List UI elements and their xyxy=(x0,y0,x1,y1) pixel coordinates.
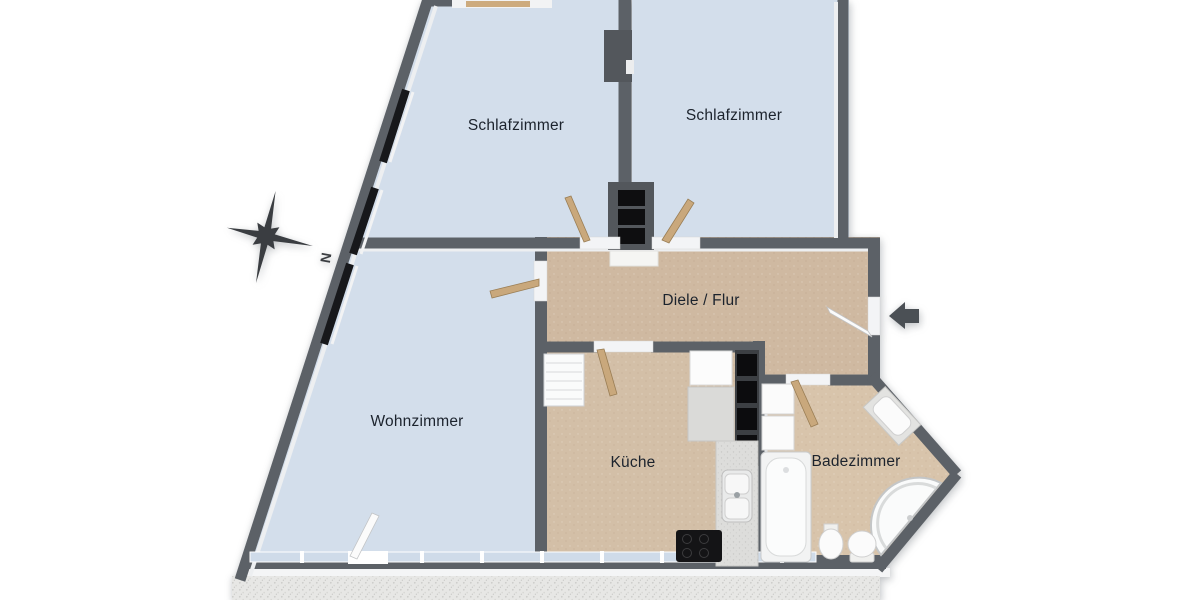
room-label-badezimmer: Badezimmer xyxy=(812,453,901,471)
room-label-diele-flur: Diele / Flur xyxy=(662,292,739,310)
floor-plan-canvas: N Schlafzimmer Schlafzimmer Diele / Flur… xyxy=(0,0,1200,600)
balcony-sill xyxy=(240,568,890,577)
shaft-opening xyxy=(618,228,645,244)
radiator xyxy=(544,354,584,406)
north-label: N xyxy=(317,251,335,264)
bathroom-cabinet xyxy=(762,384,794,414)
floor-plan-drawing: N xyxy=(0,0,1200,600)
balcony-terrace xyxy=(232,576,880,600)
kitchen-sink xyxy=(722,470,752,522)
shaft-opening xyxy=(618,209,645,225)
kitchen-cabinet xyxy=(690,351,732,385)
cooktop xyxy=(676,530,722,562)
kitchen-counter-block xyxy=(688,387,734,441)
toilet xyxy=(848,531,876,562)
window-top-bedroom-left xyxy=(452,0,552,8)
bathroom-cabinet xyxy=(762,416,794,450)
room-label-schlafzimmer-left: Schlafzimmer xyxy=(468,117,564,135)
entrance-arrow-icon xyxy=(889,302,919,329)
bathtub xyxy=(761,452,811,562)
compass-icon: N xyxy=(227,191,335,283)
room-label-wohnzimmer: Wohnzimmer xyxy=(370,413,463,431)
room-label-kueche: Küche xyxy=(611,454,656,472)
shaft-opening xyxy=(618,190,645,206)
room-label-schlafzimmer-right: Schlafzimmer xyxy=(686,107,782,125)
faucet xyxy=(734,492,740,498)
doormat xyxy=(610,251,658,266)
